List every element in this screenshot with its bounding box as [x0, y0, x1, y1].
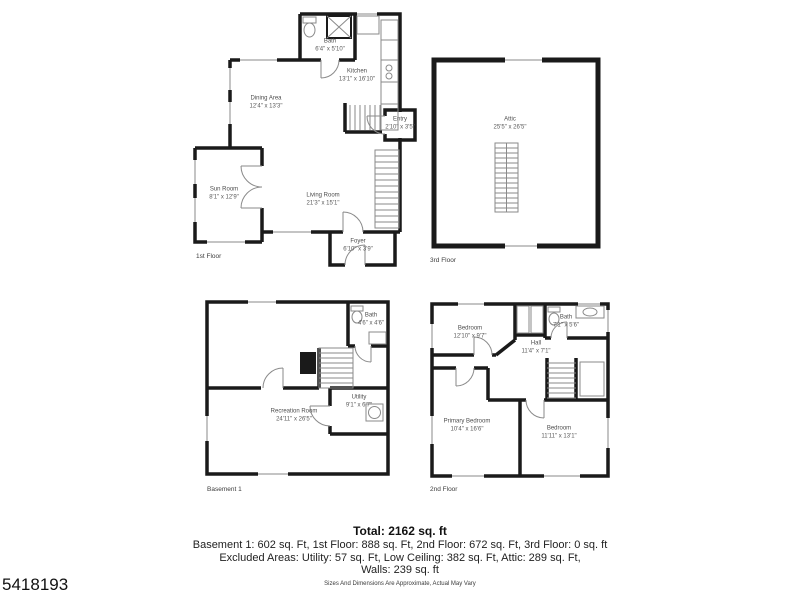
floor-label-basement-1: Basement 1	[207, 486, 242, 493]
room-label-utility: Utility 9'1" x 6'7"	[346, 395, 372, 410]
room-label-bedroom-1: Bedroom 12'10" x 9'7"	[454, 326, 487, 341]
walls	[207, 302, 388, 474]
chimney-icon	[300, 352, 316, 374]
room-label-recreation-room: Recreation Room 24'11" x 26'5"	[271, 409, 318, 424]
total-area-text: Total: 2162 sq. ft	[100, 524, 700, 538]
room-label-primary-bedroom: Primary Bedroom 10'4" x 16'6"	[444, 419, 491, 434]
listing-id: 5418193	[2, 575, 68, 595]
room-label-bedroom-2: Bedroom 11'11" x 13'1"	[541, 426, 576, 441]
floor-label-3rd-floor: 3rd Floor	[430, 257, 456, 264]
floorplan-sheet: Bath 6'4" x 5'10" Kitchen 13'1" x 16'10"…	[0, 0, 800, 600]
floor-label-2nd-floor: 2nd Floor	[430, 486, 457, 493]
wall-openings	[193, 11, 403, 268]
walls-area-text: Walls: 239 sq. ft	[100, 564, 700, 577]
vanity-icon	[576, 306, 604, 318]
disclaimer-text: Sizes And Dimensions Are Approximate, Ac…	[100, 581, 700, 587]
third-floor-plan-drawing	[430, 56, 602, 250]
room-label-bath-1st: Bath 6'4" x 5'10"	[315, 39, 345, 54]
excluded-areas-text: Excluded Areas: Utility: 57 sq. Ft, Low …	[100, 552, 700, 565]
room-label-living-room: Living Room 21'3" x 15'1"	[306, 193, 339, 208]
toilet-icon	[303, 17, 316, 37]
walls	[195, 14, 415, 265]
room-label-bath-basement: Bath 4'6" x 4'6"	[358, 313, 384, 328]
room-label-foyer: Foyer 6'10" x 3'9"	[343, 239, 373, 254]
room-label-entry: Entry 2'10" x 3'5"	[385, 117, 415, 132]
room-label-attic: Attic 25'5" x 26'5"	[494, 117, 527, 132]
shower-icon	[327, 16, 351, 38]
room-label-bath-2nd: Bath 7'1" x 5'6"	[553, 315, 579, 330]
floor-areas-text: Basement 1: 602 sq. Ft, 1st Floor: 888 s…	[100, 539, 700, 552]
room-label-sun-room: Sun Room 8'1" x 12'9"	[209, 187, 239, 202]
room-label-kitchen: Kitchen 13'1" x 16'10"	[339, 69, 375, 84]
floor-label-1st-floor: 1st Floor	[196, 253, 221, 260]
first-floor-plan-drawing	[193, 10, 423, 268]
room-label-dining-area: Dining Area 12'4" x 13'3"	[250, 96, 283, 111]
stairs-icon	[319, 348, 353, 388]
staircase-icon	[375, 150, 399, 228]
room-label-hall: Hall 11'4" x 7'1"	[521, 341, 550, 356]
area-summary: Total: 2162 sq. ft Basement 1: 602 sq. F…	[100, 524, 700, 587]
stairs-icon	[547, 363, 576, 398]
stairs-icon	[495, 143, 518, 212]
vanity-icon	[369, 332, 386, 344]
stairs-icon	[350, 105, 380, 130]
